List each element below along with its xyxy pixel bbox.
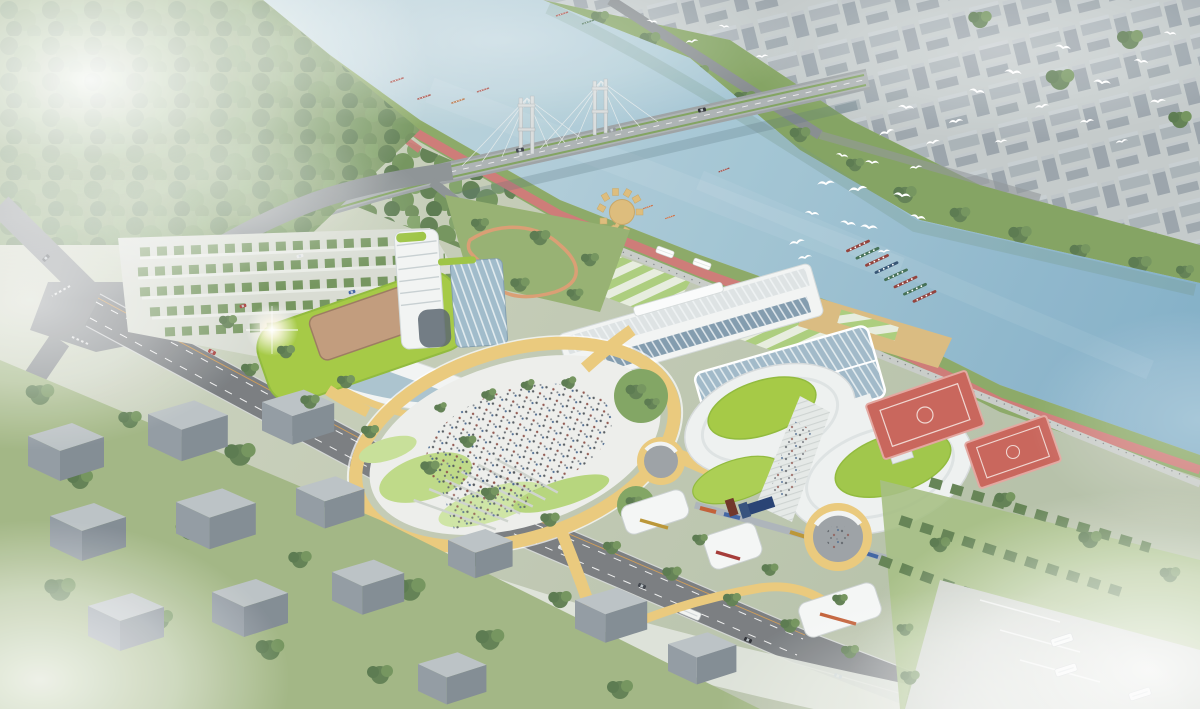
aerial-rendering: [0, 0, 1200, 709]
mist-layers: [0, 0, 1200, 709]
rendering-canvas: [0, 0, 1200, 709]
